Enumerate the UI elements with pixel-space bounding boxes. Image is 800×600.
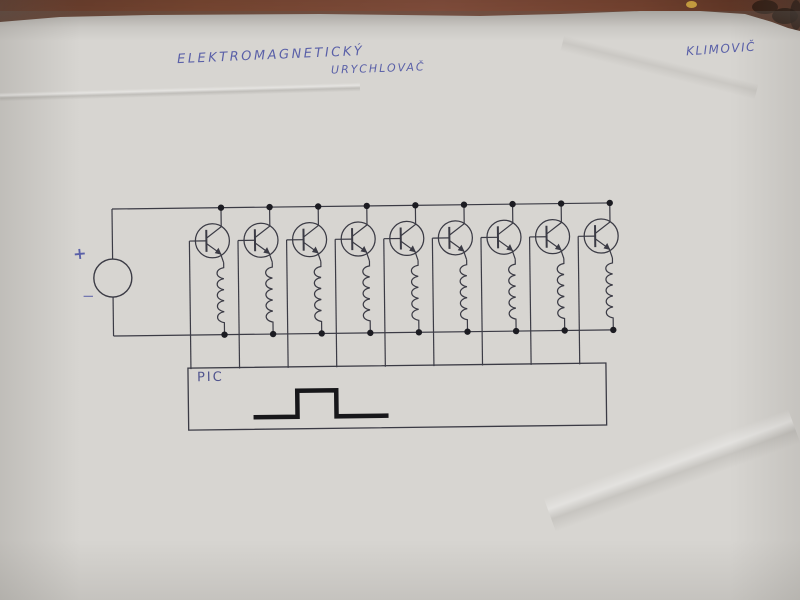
emitter-arrow-icon xyxy=(409,245,416,252)
source-lead xyxy=(112,209,113,259)
transistor-stage xyxy=(238,204,280,369)
voltage-source-symbol xyxy=(94,259,132,297)
inductor-coil xyxy=(217,263,225,335)
transistor-stage xyxy=(335,203,377,368)
transistor-stage xyxy=(529,200,571,365)
emitter-arrow-icon xyxy=(506,244,513,251)
emitter-arrow-icon xyxy=(360,246,367,253)
emitter-arrow-icon xyxy=(555,244,562,251)
junction-dot xyxy=(464,328,470,334)
collector-wire xyxy=(304,207,319,237)
collector-wire xyxy=(547,204,562,234)
collector-wire xyxy=(449,205,464,235)
circuit-schematic xyxy=(0,0,800,600)
pulse-waveform-icon xyxy=(253,390,388,418)
pic-controller-box xyxy=(188,363,607,430)
emitter-arrow-icon xyxy=(603,243,610,250)
inductor-coil xyxy=(314,261,322,333)
base-wire-to-pic xyxy=(481,238,483,366)
base-wire-to-pic xyxy=(530,237,532,365)
junction-dot xyxy=(607,200,613,206)
base-wire-to-pic xyxy=(238,240,240,368)
junction-dot xyxy=(364,203,370,209)
transistor-stage xyxy=(578,200,620,365)
emitter-arrow-icon xyxy=(215,248,222,255)
emitter-arrow-icon xyxy=(263,247,270,254)
inductor-coil xyxy=(508,259,516,331)
junction-dot xyxy=(610,327,616,333)
top-supply-rail xyxy=(112,203,610,209)
source-minus-label: − xyxy=(82,287,95,305)
inductor-coil xyxy=(363,261,371,333)
base-wire-to-pic xyxy=(578,236,580,364)
base-wire-to-pic xyxy=(335,239,337,367)
junction-dot xyxy=(315,203,321,209)
junction-dot xyxy=(509,201,515,207)
junction-dot xyxy=(561,327,567,333)
junction-dot xyxy=(558,200,564,206)
collector-wire xyxy=(206,208,221,238)
junction-dot xyxy=(218,204,224,210)
collector-wire xyxy=(498,204,513,234)
transistor-stage xyxy=(189,204,231,369)
transistor-stage xyxy=(286,203,328,368)
junction-dot xyxy=(513,328,519,334)
source-plus-label: + xyxy=(72,243,87,263)
collector-wire xyxy=(401,205,416,235)
transistor-stage xyxy=(432,201,474,366)
photo-of-hand-drawn-schematic: ELEKTROMAGNETICKÝ URYCHLOVAČ KLIMOVIČ + … xyxy=(0,0,800,600)
collector-wire xyxy=(595,203,610,233)
emitter-arrow-icon xyxy=(312,247,319,254)
base-wire-to-pic xyxy=(189,241,191,369)
inductor-coil xyxy=(266,262,274,334)
junction-dot xyxy=(270,331,276,337)
inductor-coil xyxy=(606,258,614,330)
base-wire-to-pic xyxy=(432,238,434,366)
base-wire-to-pic xyxy=(287,240,289,368)
bottom-supply-rail xyxy=(114,330,614,336)
junction-dot xyxy=(416,329,422,335)
collector-wire xyxy=(255,207,270,237)
inductor-coil xyxy=(557,259,565,331)
base-wire-to-pic xyxy=(384,239,386,367)
emitter-arrow-icon xyxy=(458,245,465,252)
junction-dot xyxy=(367,330,373,336)
junction-dot xyxy=(461,201,467,207)
transistor-stage xyxy=(383,202,425,367)
inductor-coil xyxy=(411,260,419,332)
pic-controller-label: PIC xyxy=(197,370,224,385)
voltage-source xyxy=(93,209,133,336)
inductor-coil xyxy=(460,260,468,332)
junction-dot xyxy=(318,330,324,336)
junction-dot xyxy=(266,204,272,210)
collector-wire xyxy=(352,206,367,236)
junction-dot xyxy=(221,331,227,337)
transistor-stage xyxy=(481,201,523,366)
junction-dot xyxy=(412,202,418,208)
